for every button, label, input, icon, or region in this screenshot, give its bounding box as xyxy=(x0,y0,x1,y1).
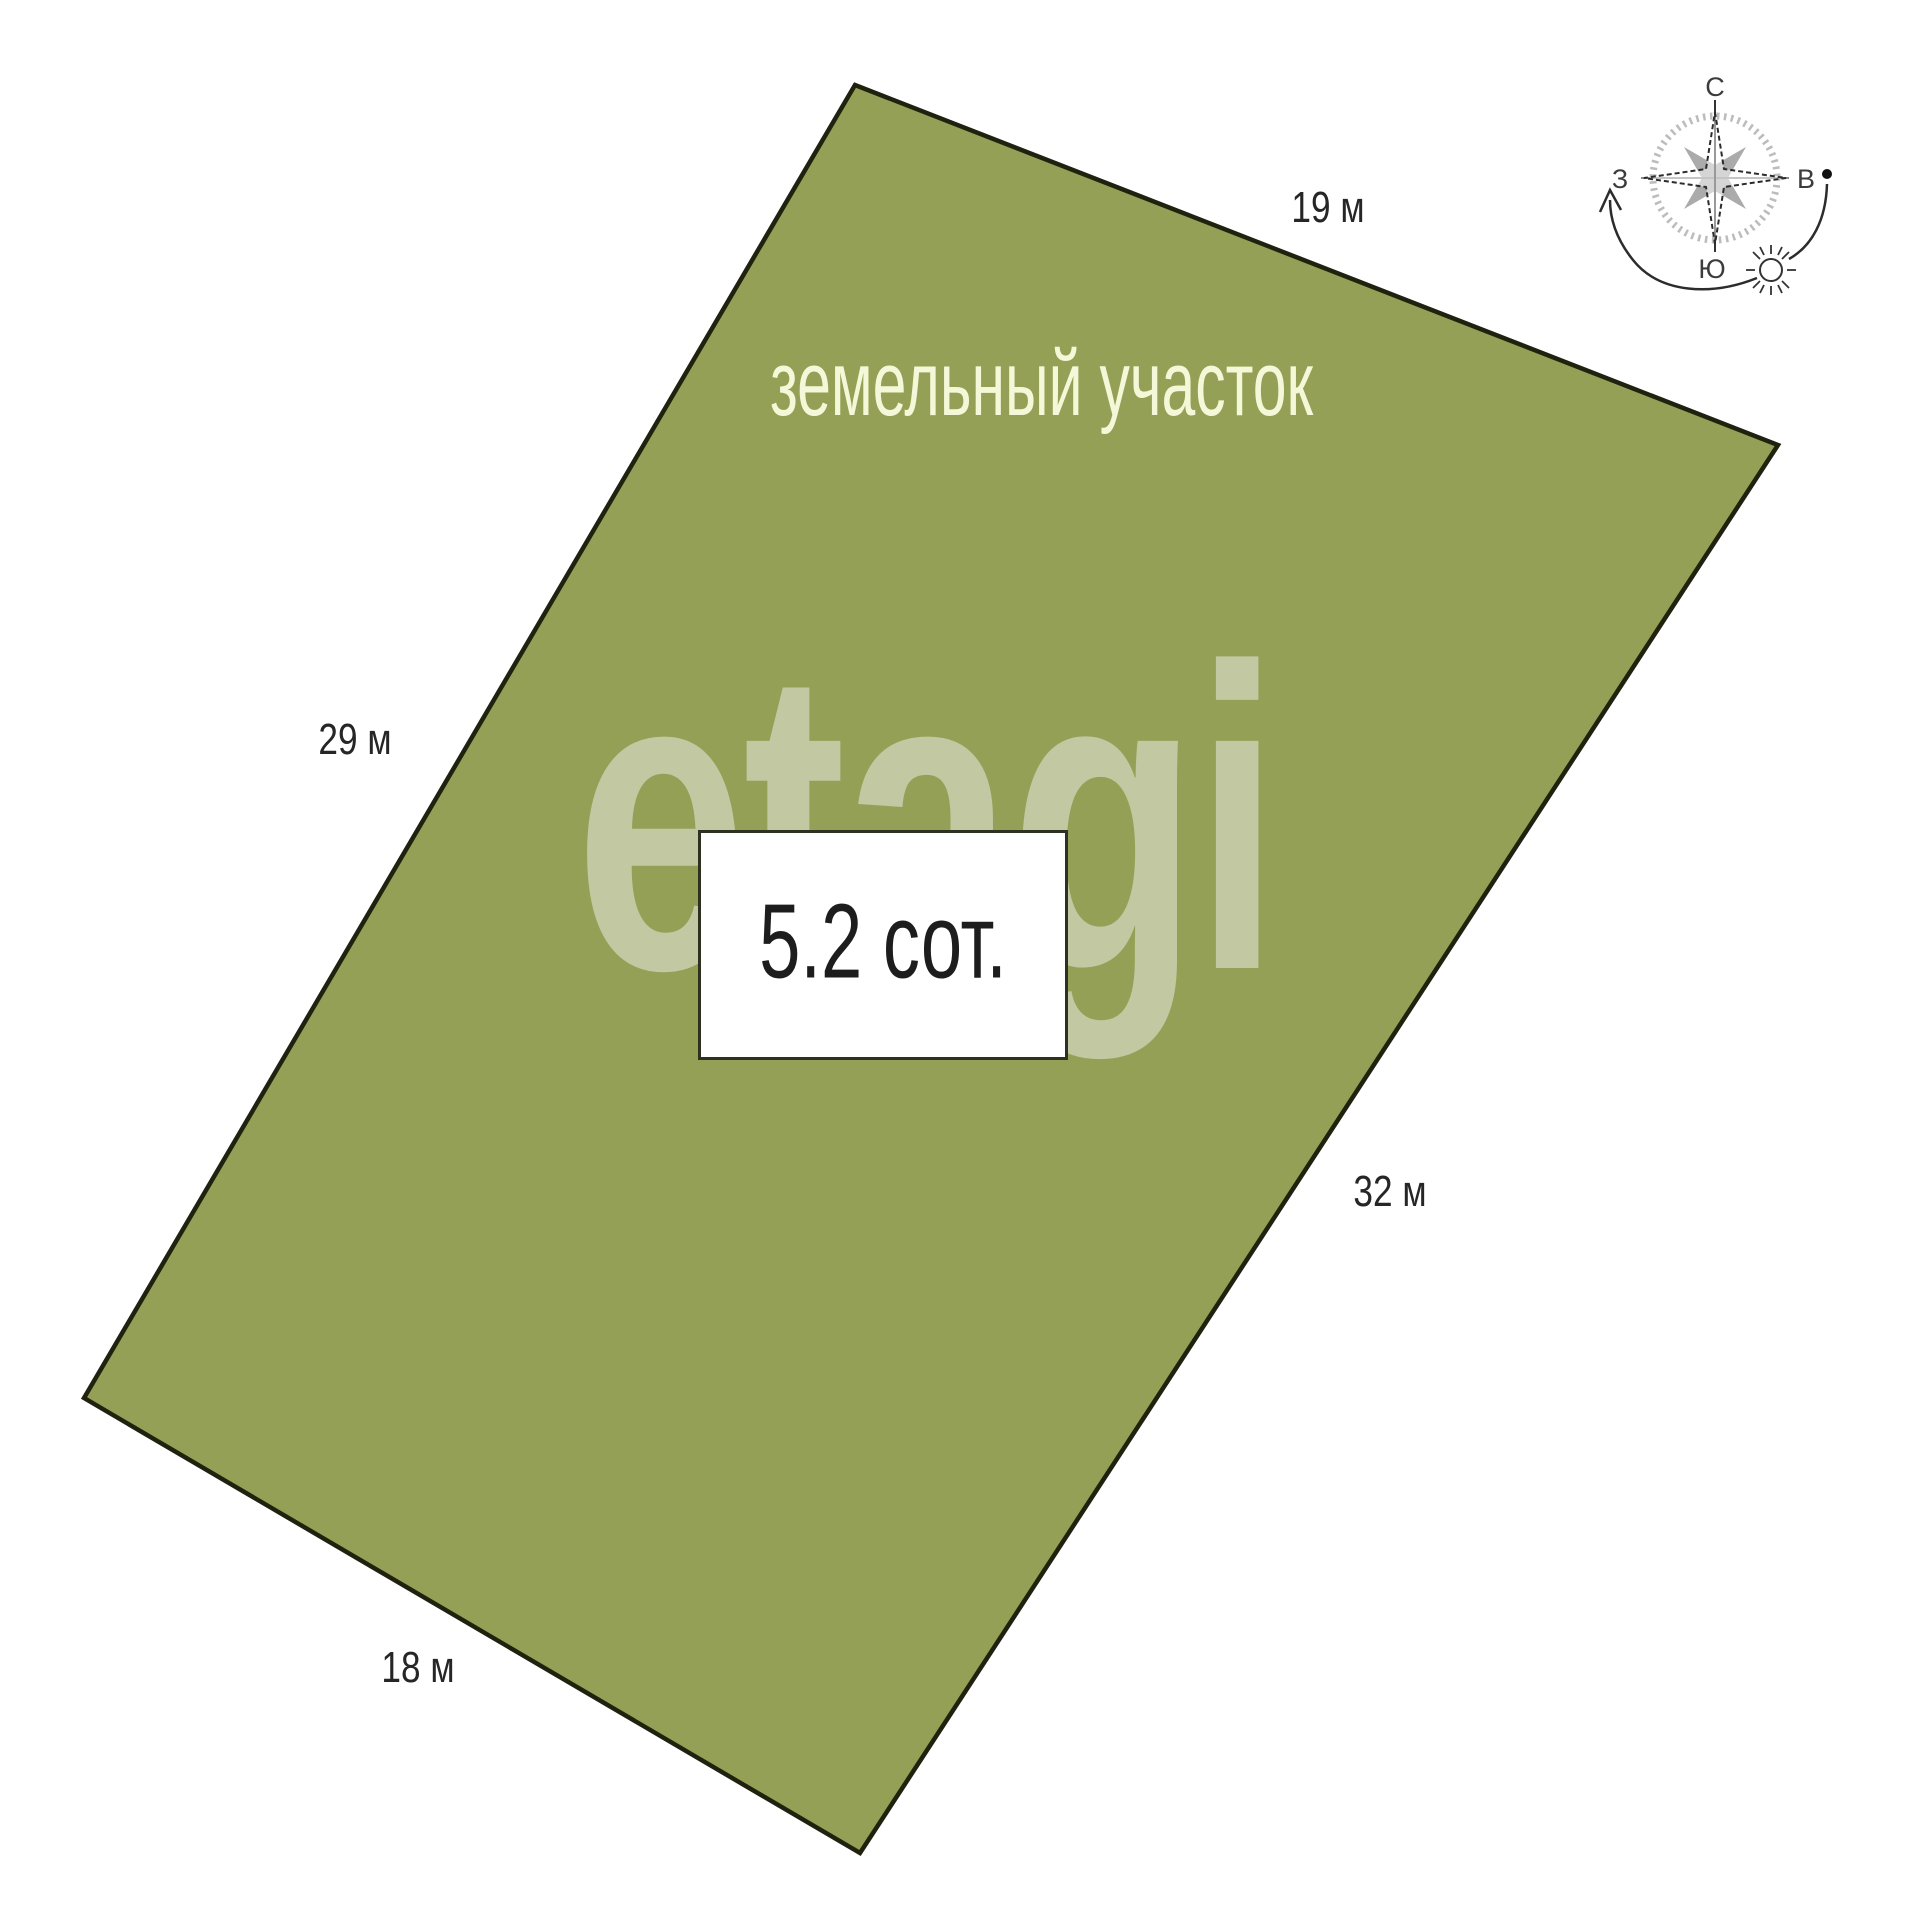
sun-path-arc-west xyxy=(1610,200,1757,289)
east-dot xyxy=(1822,169,1832,179)
side-length-right: 32 м xyxy=(1353,1167,1426,1217)
plot-title: земельный участок xyxy=(770,332,1313,437)
area-value: 5.2 сот. xyxy=(759,882,1007,1003)
compass-rose: С Ю З В xyxy=(1580,58,1880,310)
compass-cardinal-star xyxy=(1644,112,1786,244)
sun-icon xyxy=(1746,245,1796,295)
side-length-bottom: 18 м xyxy=(381,1643,454,1693)
compass-west-label: З xyxy=(1612,164,1628,194)
land-plot-diagram: etagi земельный участок 5.2 сот. 19 м 29… xyxy=(0,0,1920,1920)
compass-south-label: Ю xyxy=(1698,254,1725,284)
sun-path-arc-east xyxy=(1789,184,1827,259)
side-length-top: 19 м xyxy=(1291,183,1364,233)
side-length-left: 29 м xyxy=(318,715,391,765)
compass-east-label: В xyxy=(1797,164,1815,194)
compass-north-label: С xyxy=(1705,72,1725,102)
